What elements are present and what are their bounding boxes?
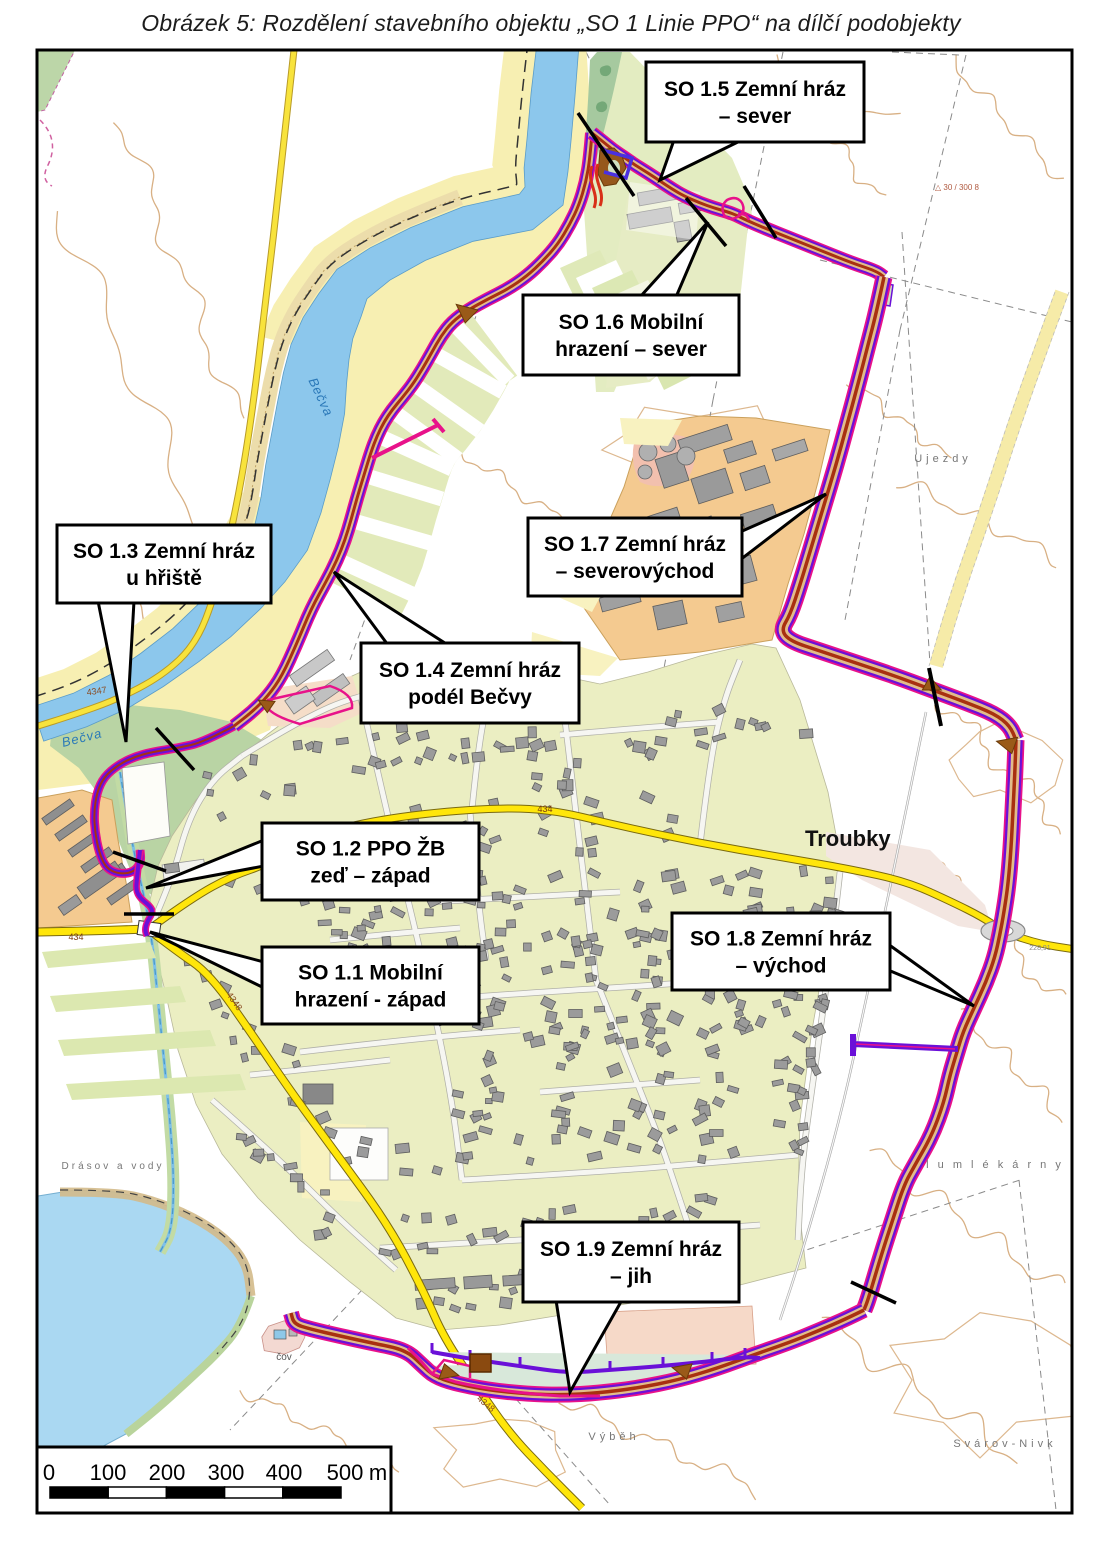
svg-text:– východ: – východ <box>735 955 826 978</box>
svg-text:čov: čov <box>276 1352 292 1363</box>
svg-text:SO 1.7 Zemní hráz: SO 1.7 Zemní hráz <box>544 533 726 556</box>
svg-text:SO 1.1 Mobilní: SO 1.1 Mobilní <box>298 962 444 985</box>
svg-text:hrazení – sever: hrazení – sever <box>555 338 707 361</box>
svg-text:Svárov-Nivk: Svárov-Nivk <box>953 1438 1056 1450</box>
svg-text:400: 400 <box>266 1460 303 1485</box>
svg-text:Výběh: Výběh <box>588 1431 639 1443</box>
svg-text:SO 1.5 Zemní hráz: SO 1.5 Zemní hráz <box>664 78 846 101</box>
svg-text:100: 100 <box>90 1460 127 1485</box>
svg-text:SO 1.2 PPO ŽB: SO 1.2 PPO ŽB <box>296 837 445 861</box>
svg-text:l u m l é k á r n y: l u m l é k á r n y <box>926 1159 1064 1171</box>
svg-text:△ 30 / 300 8: △ 30 / 300 8 <box>935 183 980 192</box>
svg-text:Troubky: Troubky <box>805 826 891 851</box>
svg-text:SO 1.6 Mobilní: SO 1.6 Mobilní <box>559 311 705 334</box>
svg-text:Ujezdy: Ujezdy <box>914 453 972 465</box>
svg-text:podél Bečvy: podél Bečvy <box>408 686 532 709</box>
svg-text:SO 1.3 Zemní hráz: SO 1.3 Zemní hráz <box>73 540 255 563</box>
svg-text:SO 1.8 Zemní hráz: SO 1.8 Zemní hráz <box>690 928 872 951</box>
svg-text:228,91: 228,91 <box>1029 945 1051 952</box>
svg-text:– sever: – sever <box>719 105 791 128</box>
svg-text:SO 1.9 Zemní hráz: SO 1.9 Zemní hráz <box>540 1238 722 1261</box>
svg-text:SO 1.4 Zemní hráz: SO 1.4 Zemní hráz <box>379 659 561 682</box>
svg-text:500: 500 <box>327 1460 364 1485</box>
svg-text:434: 434 <box>537 804 552 814</box>
svg-text:200: 200 <box>149 1460 186 1485</box>
svg-text:434: 434 <box>68 932 83 942</box>
svg-text:– jih: – jih <box>610 1265 652 1288</box>
svg-text:zeď – západ: zeď – západ <box>310 865 430 888</box>
svg-text:m: m <box>369 1460 387 1485</box>
svg-text:Drásov a vody: Drásov a vody <box>62 1161 165 1172</box>
svg-text:u hřiště: u hřiště <box>126 567 202 590</box>
svg-text:hrazení - západ: hrazení - západ <box>295 989 447 1012</box>
svg-text:0: 0 <box>43 1460 55 1485</box>
svg-text:– severovýchod: – severovýchod <box>556 560 715 583</box>
svg-text:300: 300 <box>208 1460 245 1485</box>
